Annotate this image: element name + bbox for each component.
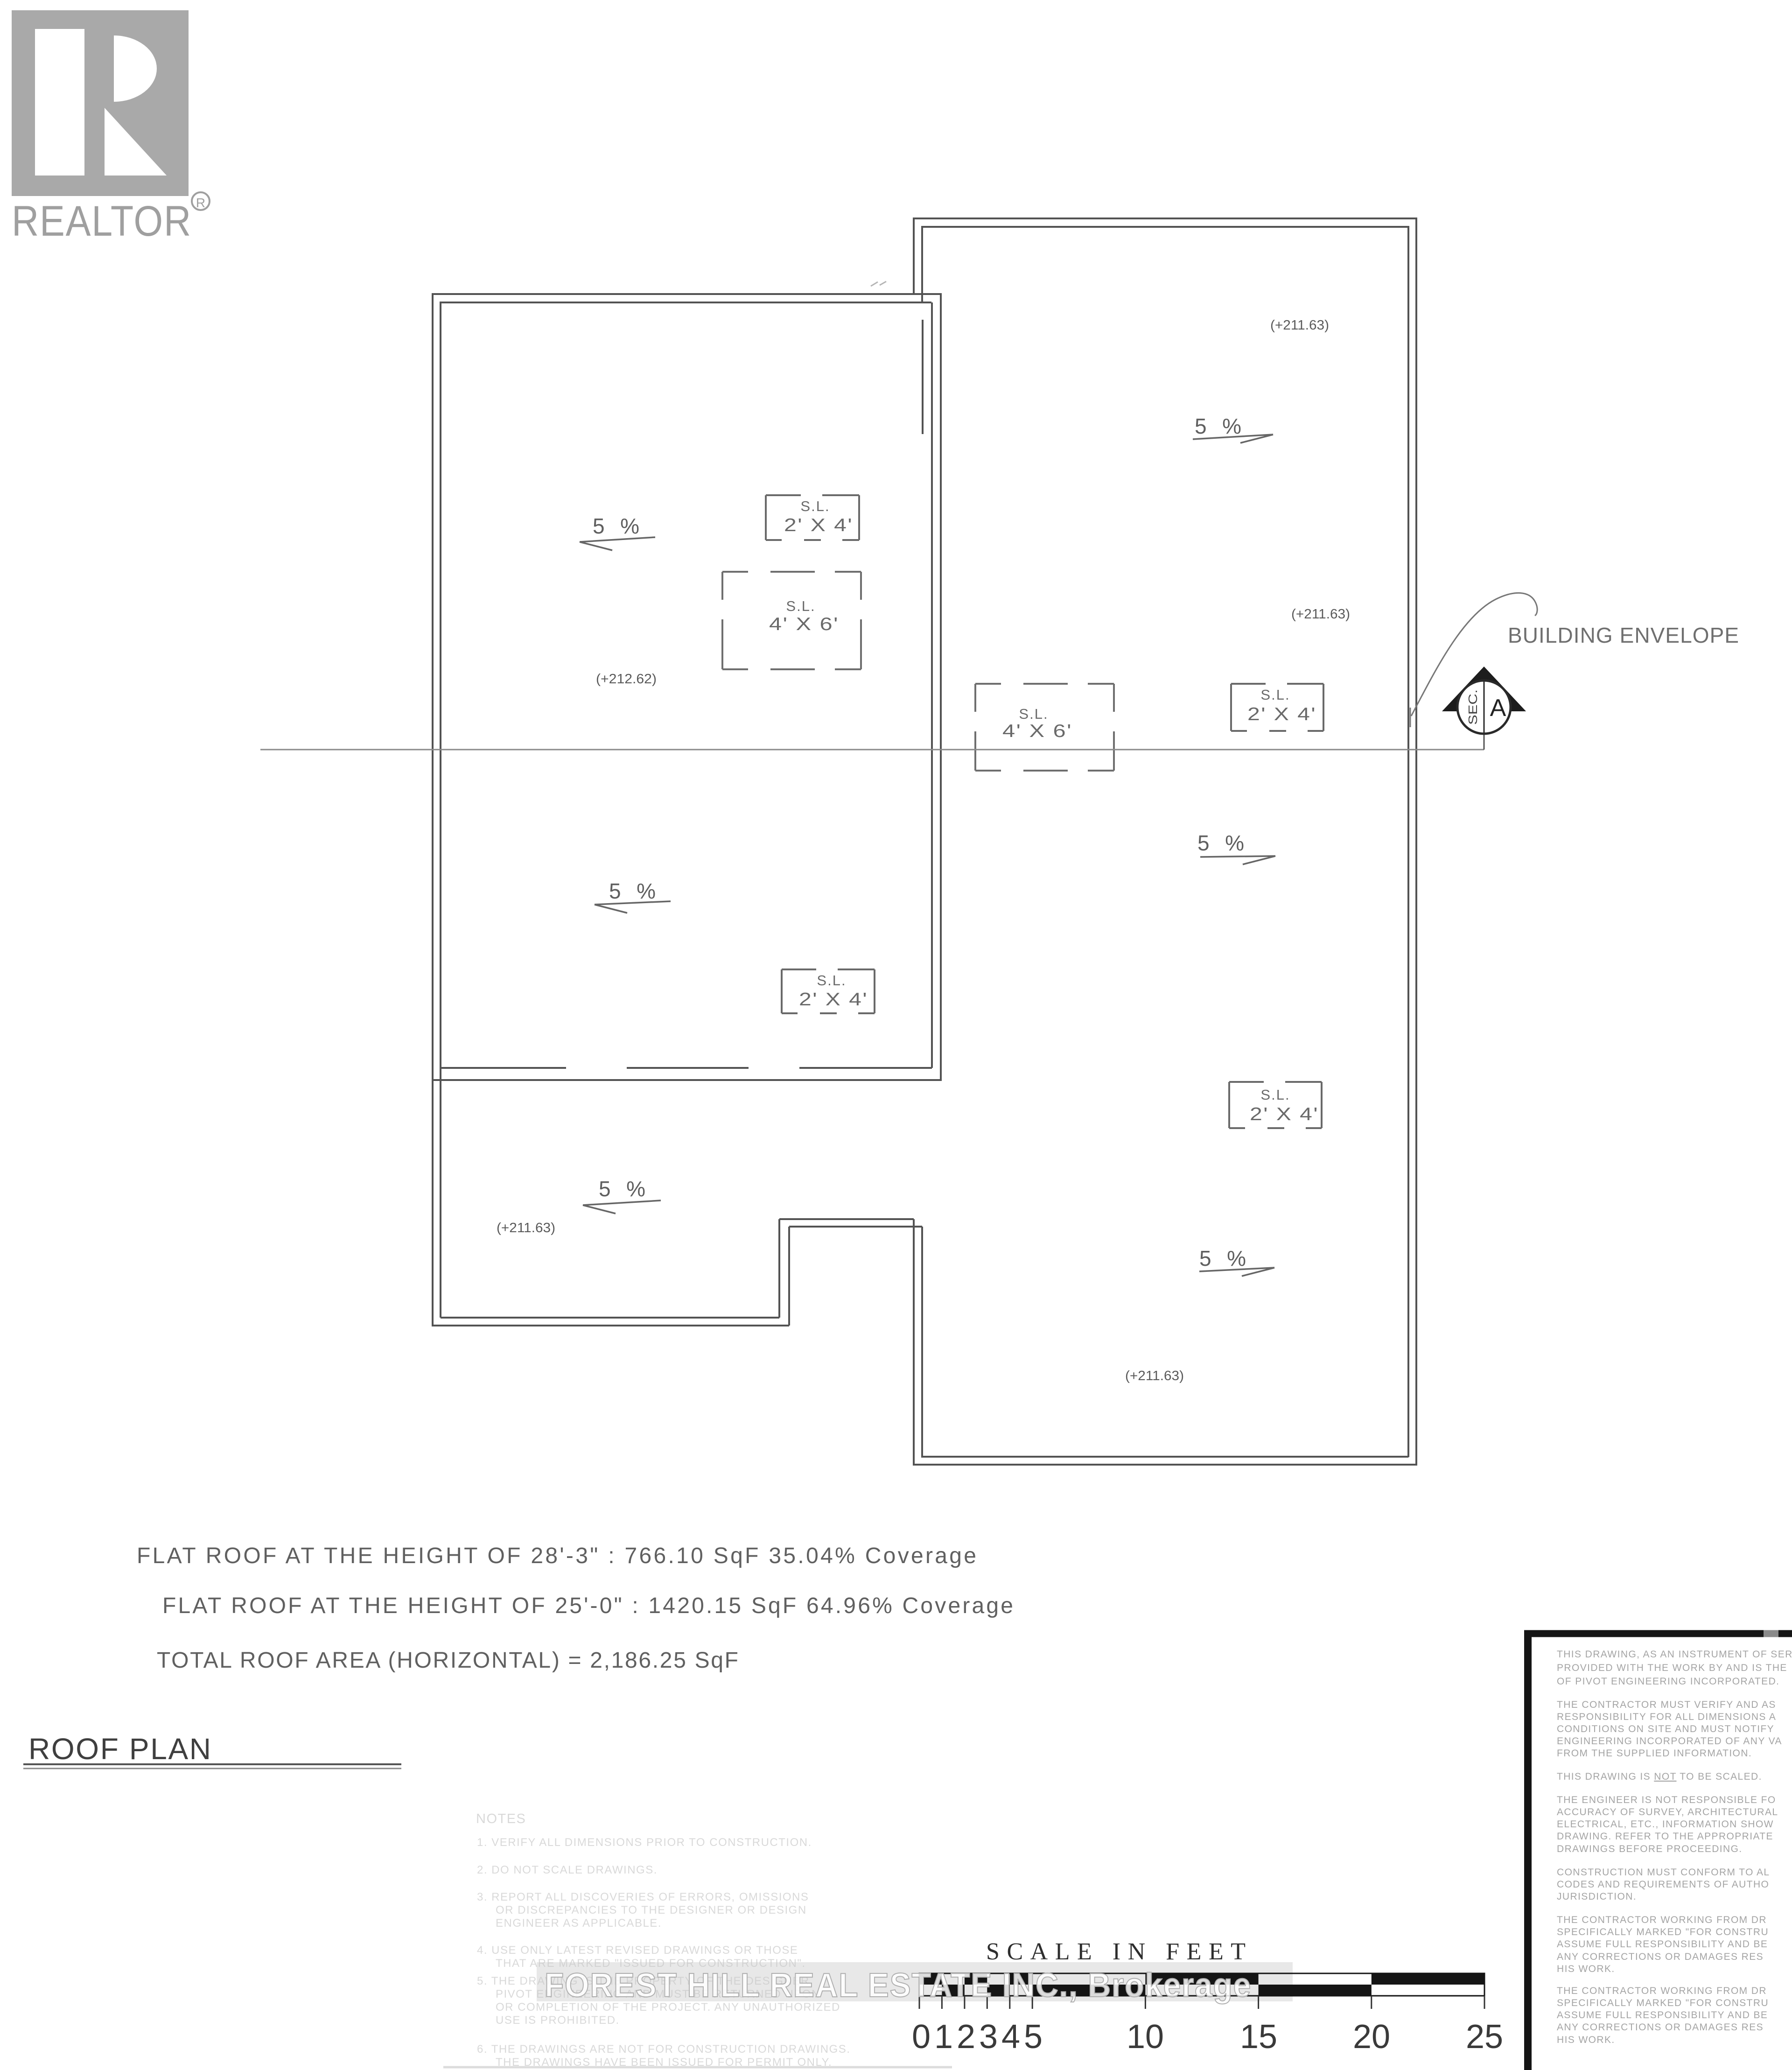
svg-text:(+212.62): (+212.62) xyxy=(596,672,657,687)
svg-text:(+211.63): (+211.63) xyxy=(1270,318,1329,333)
svg-text:ACCURACY OF SURVEY, ARCHITECTU: ACCURACY OF SURVEY, ARCHITECTURAL xyxy=(1557,1807,1778,1817)
svg-text:SPECIFICALLY MARKED "FOR CONST: SPECIFICALLY MARKED "FOR CONSTRU xyxy=(1557,1998,1769,2008)
svg-text:THE CONTRACTOR MUST VERIFY AND: THE CONTRACTOR MUST VERIFY AND AS xyxy=(1557,1699,1776,1710)
svg-text:4' X 6': 4' X 6' xyxy=(769,614,839,634)
svg-text:2' X 4': 2' X 4' xyxy=(1250,1104,1319,1124)
svg-text:2' X 4': 2' X 4' xyxy=(799,989,868,1010)
svg-text:5 %: 5 % xyxy=(1197,831,1244,855)
svg-text:FROM THE SUPPLIED INFORMATION.: FROM THE SUPPLIED INFORMATION. xyxy=(1557,1748,1752,1759)
svg-text:20: 20 xyxy=(1353,2018,1390,2056)
svg-text:2' X 4': 2' X 4' xyxy=(1247,704,1316,724)
svg-text:6. THE DRAWINGS ARE NOT FOR C: 6. THE DRAWINGS ARE NOT FOR CONSTRUCTION… xyxy=(477,2043,850,2056)
svg-text:S.L.: S.L. xyxy=(800,498,830,514)
svg-text:OF PIVOT ENGINEERING INCORPORA: OF PIVOT ENGINEERING INCORPORATED. xyxy=(1557,1676,1779,1687)
svg-text:ANY CORRECTIONS OR DAMAGES RES: ANY CORRECTIONS OR DAMAGES RES xyxy=(1557,1951,1764,1962)
svg-text:SEC.: SEC. xyxy=(1466,689,1480,725)
svg-text:15: 15 xyxy=(1240,2018,1277,2056)
svg-text:THE CONTRACTOR WORKING FROM DR: THE CONTRACTOR WORKING FROM DR xyxy=(1557,1986,1767,1996)
svg-text:THIS DRAWING IS NOT TO BE SCAL: THIS DRAWING IS NOT TO BE SCALED. xyxy=(1557,1771,1762,1782)
svg-text:5: 5 xyxy=(1024,2018,1043,2056)
svg-text:1. VERIFY ALL DIMENSIONS PRIO: 1. VERIFY ALL DIMENSIONS PRIOR TO CONSTR… xyxy=(477,1836,812,1849)
svg-text:5 %: 5 % xyxy=(1195,414,1241,438)
svg-text:(+211.63): (+211.63) xyxy=(1291,607,1350,622)
svg-text:(+211.63): (+211.63) xyxy=(1125,1368,1184,1383)
svg-text:THE ENGINEER IS NOT RESPONSIBL: THE ENGINEER IS NOT RESPONSIBLE FO xyxy=(1557,1795,1776,1805)
svg-text:ENGINEERING INCORPORATED OF AN: ENGINEERING INCORPORATED OF ANY VA xyxy=(1557,1736,1782,1747)
svg-text:5 %: 5 % xyxy=(593,514,639,538)
svg-text:ASSUME FULL RESPONSIBILITY AND: ASSUME FULL RESPONSIBILITY AND BE xyxy=(1557,1939,1768,1950)
svg-text:FLAT ROOF AT THE HEIGHT OF 28': FLAT ROOF AT THE HEIGHT OF 28'-3" : 766.… xyxy=(137,1544,976,1568)
svg-text:THE CONTRACTOR WORKING FROM DR: THE CONTRACTOR WORKING FROM DR xyxy=(1557,1915,1767,1925)
svg-text:SCALE IN FEET: SCALE IN FEET xyxy=(986,1938,1246,1965)
svg-text:3: 3 xyxy=(979,2018,998,2056)
svg-text:4' X 6': 4' X 6' xyxy=(1002,721,1072,741)
svg-text:CONSTRUCTION MUST CONFORM TO A: CONSTRUCTION MUST CONFORM TO AL xyxy=(1557,1867,1770,1878)
svg-text:CONDITIONS ON SITE AND MUST NO: CONDITIONS ON SITE AND MUST NOTIFY xyxy=(1557,1724,1774,1734)
svg-text:3. REPORT ALL DISCOVERIES OF: 3. REPORT ALL DISCOVERIES OF ERRORS, OMI… xyxy=(477,1891,809,1903)
svg-text:RESPONSIBILITY FOR ALL DIMENSI: RESPONSIBILITY FOR ALL DIMENSIONS A xyxy=(1557,1712,1776,1722)
svg-text:4: 4 xyxy=(1001,2018,1020,2056)
svg-text:SPECIFICALLY MARKED "FOR CONST: SPECIFICALLY MARKED "FOR CONSTRU xyxy=(1557,1927,1769,1937)
svg-text:0: 0 xyxy=(912,2018,931,2056)
svg-text:S.L.: S.L. xyxy=(1260,1087,1290,1103)
svg-text:THIS DRAWING, AS AN INSTRUMENT: THIS DRAWING, AS AN INSTRUMENT OF SER xyxy=(1557,1649,1792,1660)
svg-text:HIS WORK.: HIS WORK. xyxy=(1557,1964,1615,1974)
svg-text:USE IS PROHIBITED.: USE IS PROHIBITED. xyxy=(496,2014,620,2027)
svg-text:A: A xyxy=(1490,695,1506,722)
svg-text:5 %: 5 % xyxy=(599,1177,645,1201)
svg-text:HIS WORK.: HIS WORK. xyxy=(1557,2035,1615,2045)
svg-text:2: 2 xyxy=(957,2018,975,2056)
svg-text:R: R xyxy=(196,196,205,210)
svg-text:NOTES: NOTES xyxy=(476,1811,526,1826)
svg-text:ASSUME FULL RESPONSIBILITY AND: ASSUME FULL RESPONSIBILITY AND BE xyxy=(1557,2010,1768,2021)
svg-text:(+211.63): (+211.63) xyxy=(497,1221,555,1235)
svg-text:25: 25 xyxy=(1466,2018,1503,2056)
svg-text:S.L.: S.L. xyxy=(1260,687,1290,703)
svg-text:5 %: 5 % xyxy=(1199,1246,1246,1270)
svg-text:1: 1 xyxy=(934,2018,953,2056)
svg-text:DRAWINGS BEFORE PROCEEDING.: DRAWINGS BEFORE PROCEEDING. xyxy=(1557,1844,1743,1854)
svg-text:TOTAL ROOF AREA (HORIZONTAL) =: TOTAL ROOF AREA (HORIZONTAL) = 2,186.25 … xyxy=(157,1648,738,1673)
svg-text:CODES AND REQUIREMENTS OF AUTH: CODES AND REQUIREMENTS OF AUTHO xyxy=(1557,1879,1769,1890)
svg-text:S.L.: S.L. xyxy=(786,598,815,614)
svg-text:4. USE ONLY LATEST REVISED DR: 4. USE ONLY LATEST REVISED DRAWINGS OR T… xyxy=(477,1944,798,1957)
svg-text:ROOF PLAN: ROOF PLAN xyxy=(28,1732,211,1766)
svg-text:ENGINEER AS APPLICABLE.: ENGINEER AS APPLICABLE. xyxy=(496,1917,662,1930)
svg-text:FLAT ROOF AT THE HEIGHT OF 25': FLAT ROOF AT THE HEIGHT OF 25'-0" : 1420… xyxy=(162,1593,1013,1618)
svg-text:10: 10 xyxy=(1127,2018,1164,2056)
svg-text:FOREST HILL REAL ESTATE INC.,: FOREST HILL REAL ESTATE INC., Brokerage xyxy=(545,1967,1252,2004)
svg-text:ELECTRICAL, ETC., INFORMATION: ELECTRICAL, ETC., INFORMATION SHOW xyxy=(1557,1819,1774,1830)
svg-text:ANY CORRECTIONS OR DAMAGES RES: ANY CORRECTIONS OR DAMAGES RES xyxy=(1557,2022,1764,2033)
svg-text:2. DO NOT SCALE DRAWINGS.: 2. DO NOT SCALE DRAWINGS. xyxy=(477,1864,658,1876)
svg-text:5 %: 5 % xyxy=(609,879,656,903)
svg-text:DRAWING. REFER TO THE APPROPRI: DRAWING. REFER TO THE APPROPRIATE xyxy=(1557,1831,1773,1842)
svg-text:REALTOR: REALTOR xyxy=(12,197,192,245)
svg-text:PROVIDED WITH THE WORK BY AND: PROVIDED WITH THE WORK BY AND IS THE xyxy=(1557,1663,1787,1673)
svg-text:JURISDICTION.: JURISDICTION. xyxy=(1557,1891,1637,1902)
svg-text:2' X 4': 2' X 4' xyxy=(784,515,853,535)
svg-text:S.L.: S.L. xyxy=(817,972,846,989)
svg-text:OR DISCREPANCIES TO THE DESIGN: OR DISCREPANCIES TO THE DESIGNER OR DESI… xyxy=(496,1904,807,1916)
svg-text:BUILDING ENVELOPE: BUILDING ENVELOPE xyxy=(1508,623,1739,647)
svg-text:S.L.: S.L. xyxy=(1019,706,1048,722)
